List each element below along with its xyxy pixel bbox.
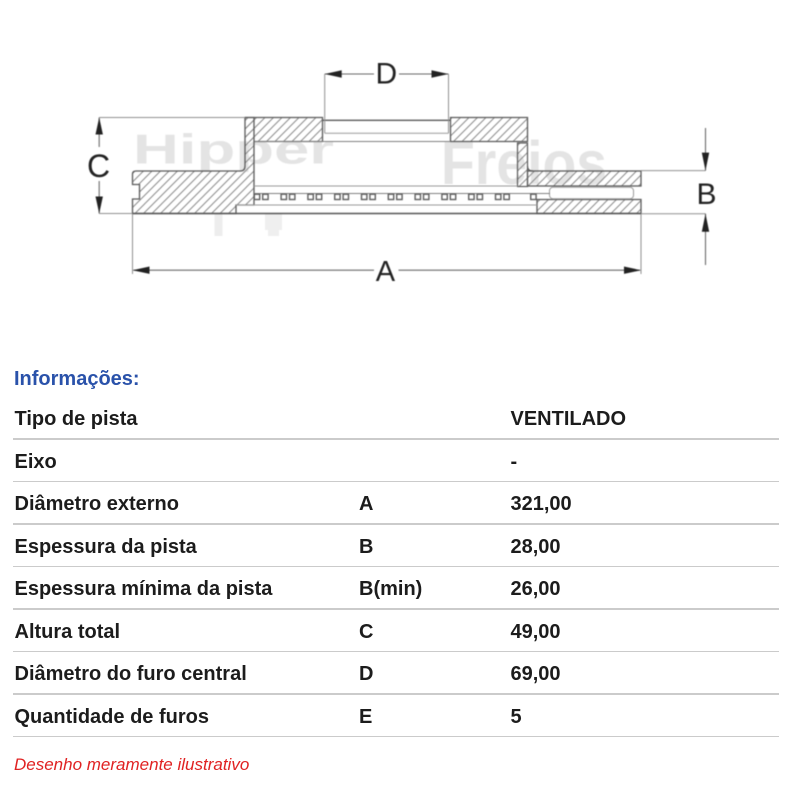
- svg-text:B: B: [697, 178, 717, 211]
- svg-text:A: A: [376, 256, 396, 288]
- svg-text:D: D: [376, 58, 398, 91]
- svg-text:C: C: [87, 148, 110, 184]
